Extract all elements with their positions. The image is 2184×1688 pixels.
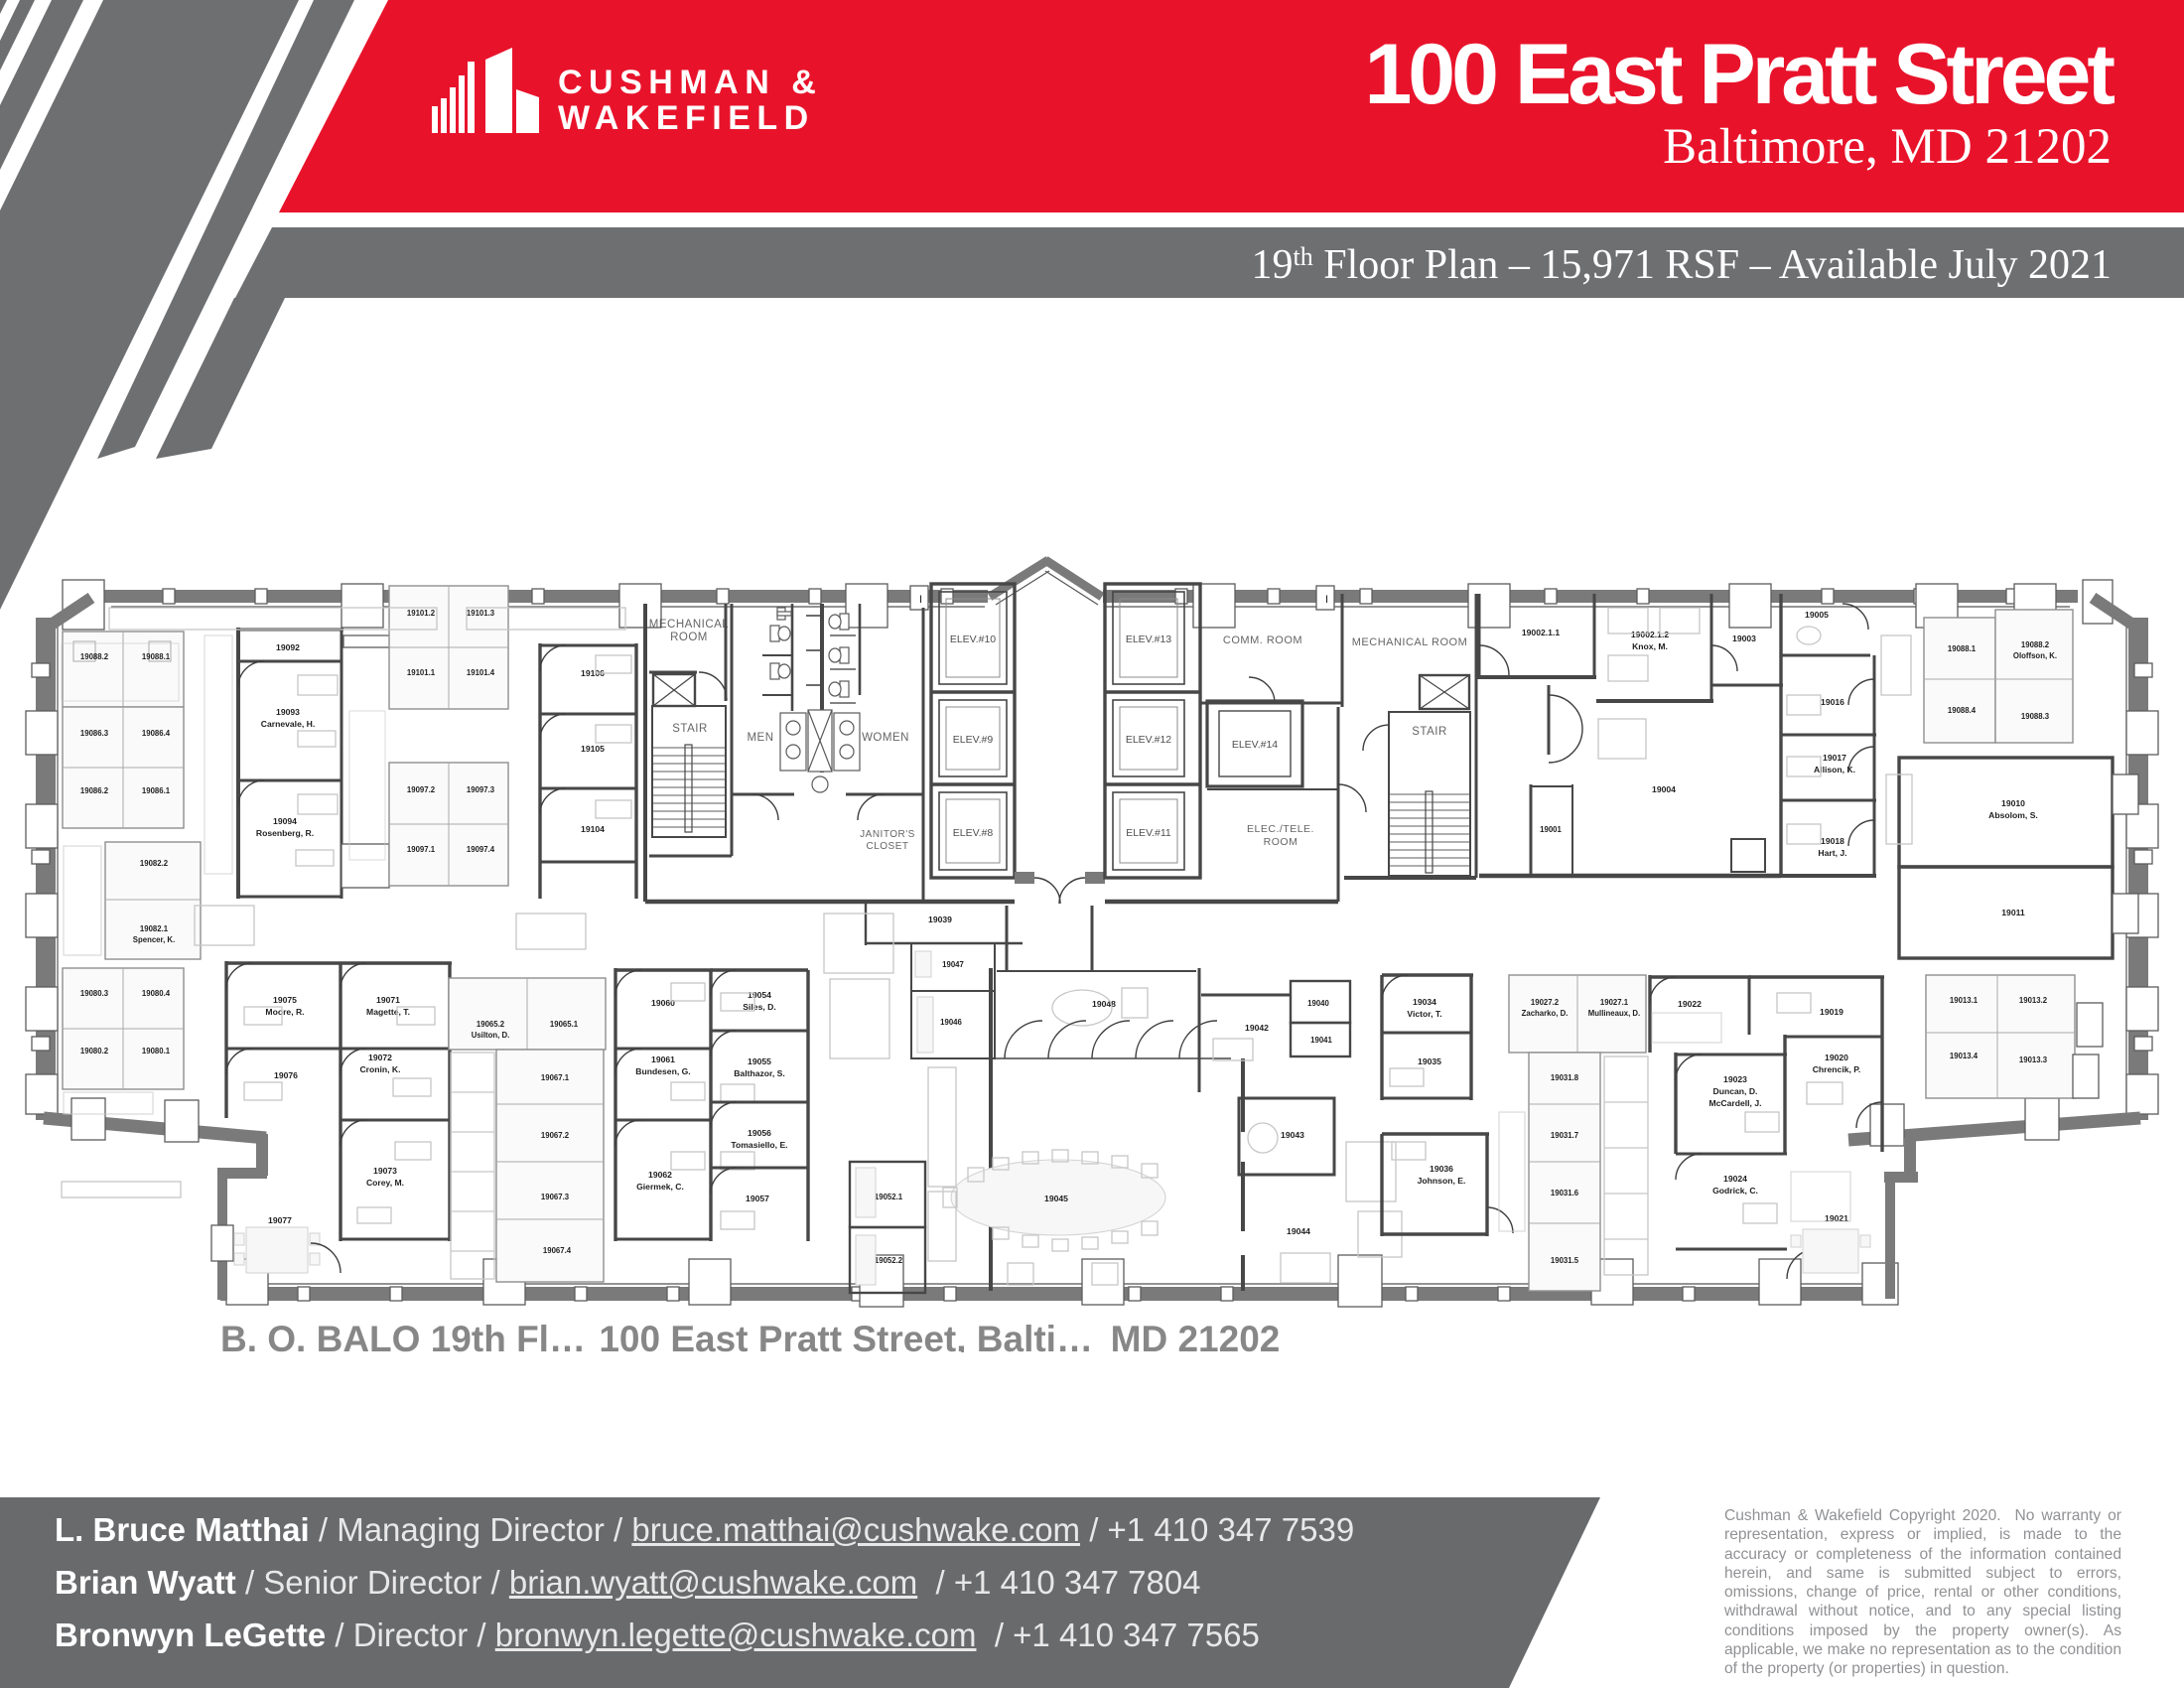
svg-text:MECHANICAL ROOM: MECHANICAL ROOM	[1352, 636, 1468, 648]
svg-text:ELEV.#12: ELEV.#12	[1126, 734, 1171, 746]
svg-text:19013.1: 19013.1	[1950, 996, 1979, 1005]
svg-text:Tomasiello, E.: Tomasiello, E.	[731, 1140, 787, 1150]
svg-text:19097.2: 19097.2	[407, 785, 436, 794]
svg-text:19076: 19076	[274, 1070, 298, 1080]
svg-text:Bundesen, G.: Bundesen, G.	[635, 1066, 690, 1076]
svg-text:19067.3: 19067.3	[541, 1193, 570, 1201]
svg-text:19027.2: 19027.2	[1531, 998, 1560, 1007]
svg-text:ROOM: ROOM	[1264, 836, 1298, 848]
svg-text:19080.1: 19080.1	[142, 1047, 171, 1055]
svg-text:19010: 19010	[2001, 798, 2025, 808]
svg-text:Zacharko, D.: Zacharko, D.	[1522, 1009, 1569, 1018]
svg-text:Chrencik, P.: Chrencik, P.	[1813, 1064, 1861, 1074]
svg-text:19036: 19036	[1430, 1164, 1453, 1174]
svg-text:19046: 19046	[940, 1018, 962, 1027]
svg-text:19055: 19055	[748, 1056, 771, 1066]
svg-text:19080.3: 19080.3	[80, 989, 109, 998]
svg-text:Magette, T.: Magette, T.	[366, 1007, 410, 1017]
svg-text:19034: 19034	[1413, 997, 1436, 1007]
svg-text:COMM. ROOM: COMM. ROOM	[1223, 634, 1302, 646]
svg-text:19041: 19041	[1310, 1036, 1332, 1045]
svg-text:19067.4: 19067.4	[543, 1246, 572, 1255]
svg-text:ELEV.#13: ELEV.#13	[1126, 633, 1171, 645]
svg-text:19061: 19061	[651, 1055, 675, 1064]
svg-text:19016: 19016	[1821, 697, 1844, 707]
svg-text:19062: 19062	[648, 1170, 672, 1180]
svg-text:19027.1: 19027.1	[1600, 998, 1629, 1007]
svg-text:19019: 19019	[1820, 1007, 1843, 1017]
svg-text:19086.3: 19086.3	[80, 729, 109, 738]
svg-text:19047: 19047	[942, 960, 964, 969]
svg-text:Victor, T.: Victor, T.	[1407, 1009, 1441, 1019]
svg-text:19040: 19040	[1307, 999, 1329, 1008]
svg-text:19088.1: 19088.1	[1948, 644, 1977, 653]
svg-text:Carnevale, H.: Carnevale, H.	[261, 719, 315, 729]
svg-text:19094: 19094	[273, 816, 297, 826]
svg-text:19031.7: 19031.7	[1551, 1131, 1578, 1140]
svg-text:ELEV.#11: ELEV.#11	[1126, 827, 1171, 839]
svg-text:19052.2: 19052.2	[875, 1256, 903, 1265]
svg-text:Cronin, K.: Cronin, K.	[359, 1064, 400, 1074]
svg-text:19088.1: 19088.1	[142, 652, 171, 661]
svg-text:19011: 19011	[2001, 908, 2025, 917]
svg-text:19097.4: 19097.4	[467, 845, 495, 854]
svg-text:19013.2: 19013.2	[2019, 996, 2048, 1005]
svg-text:Duncan, D.: Duncan, D.	[1713, 1086, 1758, 1096]
svg-text:19023: 19023	[1723, 1074, 1747, 1084]
svg-text:19067.2: 19067.2	[541, 1131, 570, 1140]
svg-text:Mullineaux, D.: Mullineaux, D.	[1588, 1009, 1640, 1018]
svg-text:ELEV.#10: ELEV.#10	[950, 633, 996, 645]
svg-text:19052.1: 19052.1	[875, 1193, 903, 1201]
svg-text:19077: 19077	[268, 1215, 292, 1225]
svg-text:19097.3: 19097.3	[467, 785, 495, 794]
svg-text:19071: 19071	[376, 995, 400, 1005]
svg-text:19067.1: 19067.1	[541, 1073, 570, 1082]
svg-text:MECHANICAL: MECHANICAL	[649, 619, 730, 631]
svg-text:19005: 19005	[1805, 610, 1829, 620]
svg-text:19018: 19018	[1821, 836, 1844, 846]
svg-text:Balthazor, S.: Balthazor, S.	[734, 1068, 785, 1078]
svg-text:19054: 19054	[748, 990, 771, 1000]
svg-text:Rosenberg, R.: Rosenberg, R.	[256, 828, 314, 838]
svg-text:19073: 19073	[373, 1166, 397, 1176]
svg-text:19101.1: 19101.1	[407, 668, 436, 677]
svg-text:19045: 19045	[1044, 1194, 1068, 1203]
svg-text:MEN: MEN	[747, 732, 773, 744]
svg-text:19035: 19035	[1418, 1056, 1441, 1066]
svg-text:19056: 19056	[748, 1128, 771, 1138]
svg-text:19043: 19043	[1281, 1130, 1304, 1140]
svg-text:19088.2: 19088.2	[2021, 640, 2050, 649]
svg-text:19082.2: 19082.2	[140, 859, 169, 868]
svg-text:Spencer, K.: Spencer, K.	[133, 935, 175, 944]
svg-text:19065.1: 19065.1	[550, 1020, 579, 1029]
svg-text:19104: 19104	[581, 824, 605, 834]
svg-text:19042: 19042	[1245, 1023, 1269, 1033]
svg-text:19082.1: 19082.1	[140, 924, 169, 933]
svg-text:Hart, J.: Hart, J.	[1818, 848, 1846, 858]
svg-text:19093: 19093	[276, 707, 300, 717]
svg-text:ELEV.#9: ELEV.#9	[953, 734, 994, 746]
svg-text:19002.1.1: 19002.1.1	[1522, 628, 1560, 637]
svg-text:19004: 19004	[1652, 784, 1676, 794]
svg-text:I: I	[1325, 594, 1328, 606]
svg-text:Corey, M.: Corey, M.	[366, 1178, 404, 1188]
svg-text:Absolom, S.: Absolom, S.	[1988, 810, 2038, 820]
svg-text:19105: 19105	[581, 744, 605, 754]
svg-text:19092: 19092	[276, 642, 300, 652]
svg-text:19080.2: 19080.2	[80, 1047, 109, 1055]
svg-text:Giermek, C.: Giermek, C.	[636, 1182, 684, 1192]
svg-text:19080.4: 19080.4	[142, 989, 171, 998]
svg-text:19031.5: 19031.5	[1551, 1256, 1579, 1265]
svg-text:STAIR: STAIR	[1412, 726, 1447, 738]
svg-text:19088.3: 19088.3	[2021, 712, 2050, 721]
svg-text:19039: 19039	[928, 914, 952, 924]
svg-text:Moore, R.: Moore, R.	[265, 1007, 304, 1017]
svg-text:19024: 19024	[1723, 1174, 1747, 1184]
svg-text:19022: 19022	[1678, 999, 1702, 1009]
svg-text:19086.2: 19086.2	[80, 786, 109, 795]
svg-text:19101.2: 19101.2	[407, 609, 436, 618]
svg-text:19088.2: 19088.2	[80, 652, 109, 661]
svg-text:19086.4: 19086.4	[142, 729, 171, 738]
svg-text:STAIR: STAIR	[672, 723, 708, 735]
svg-text:19075: 19075	[273, 995, 297, 1005]
svg-text:WOMEN: WOMEN	[862, 732, 909, 744]
svg-text:ELEV.#8: ELEV.#8	[953, 827, 994, 839]
svg-text:19031.6: 19031.6	[1551, 1189, 1579, 1197]
svg-text:19013.3: 19013.3	[2019, 1055, 2048, 1064]
svg-text:19001: 19001	[1540, 825, 1562, 834]
svg-text:Godrick, C.: Godrick, C.	[1712, 1186, 1758, 1196]
svg-text:19101.3: 19101.3	[467, 609, 495, 618]
svg-text:19020: 19020	[1825, 1053, 1848, 1062]
svg-text:19044: 19044	[1287, 1226, 1310, 1236]
svg-text:I: I	[919, 594, 922, 606]
svg-text:19003: 19003	[1732, 633, 1756, 643]
svg-text:19088.4: 19088.4	[1948, 706, 1977, 715]
svg-text:Oloffson, K.: Oloffson, K.	[2013, 651, 2057, 660]
svg-text:McCardell, J.: McCardell, J.	[1708, 1098, 1761, 1108]
svg-text:ROOM: ROOM	[670, 632, 708, 643]
svg-text:Johnson, E.: Johnson, E.	[1418, 1176, 1466, 1186]
svg-text:ELEV.#14: ELEV.#14	[1232, 739, 1278, 751]
svg-text:19057: 19057	[746, 1194, 769, 1203]
svg-text:19065.2: 19065.2	[477, 1020, 505, 1029]
svg-text:19101.4: 19101.4	[467, 668, 495, 677]
svg-text:19097.1: 19097.1	[407, 845, 436, 854]
svg-text:ELEC./TELE.: ELEC./TELE.	[1247, 823, 1314, 835]
svg-text:19017: 19017	[1823, 753, 1846, 763]
svg-text:19072: 19072	[368, 1053, 392, 1062]
svg-text:JANITOR'S: JANITOR'S	[860, 829, 915, 840]
svg-text:19031.8: 19031.8	[1551, 1073, 1579, 1082]
svg-text:CLOSET: CLOSET	[866, 841, 908, 852]
svg-text:19086.1: 19086.1	[142, 786, 171, 795]
svg-text:19013.4: 19013.4	[1950, 1052, 1979, 1060]
svg-text:Knox, M.: Knox, M.	[1632, 641, 1668, 651]
svg-text:19002.1.2: 19002.1.2	[1631, 630, 1669, 639]
svg-text:Usilton, D.: Usilton, D.	[472, 1031, 510, 1040]
